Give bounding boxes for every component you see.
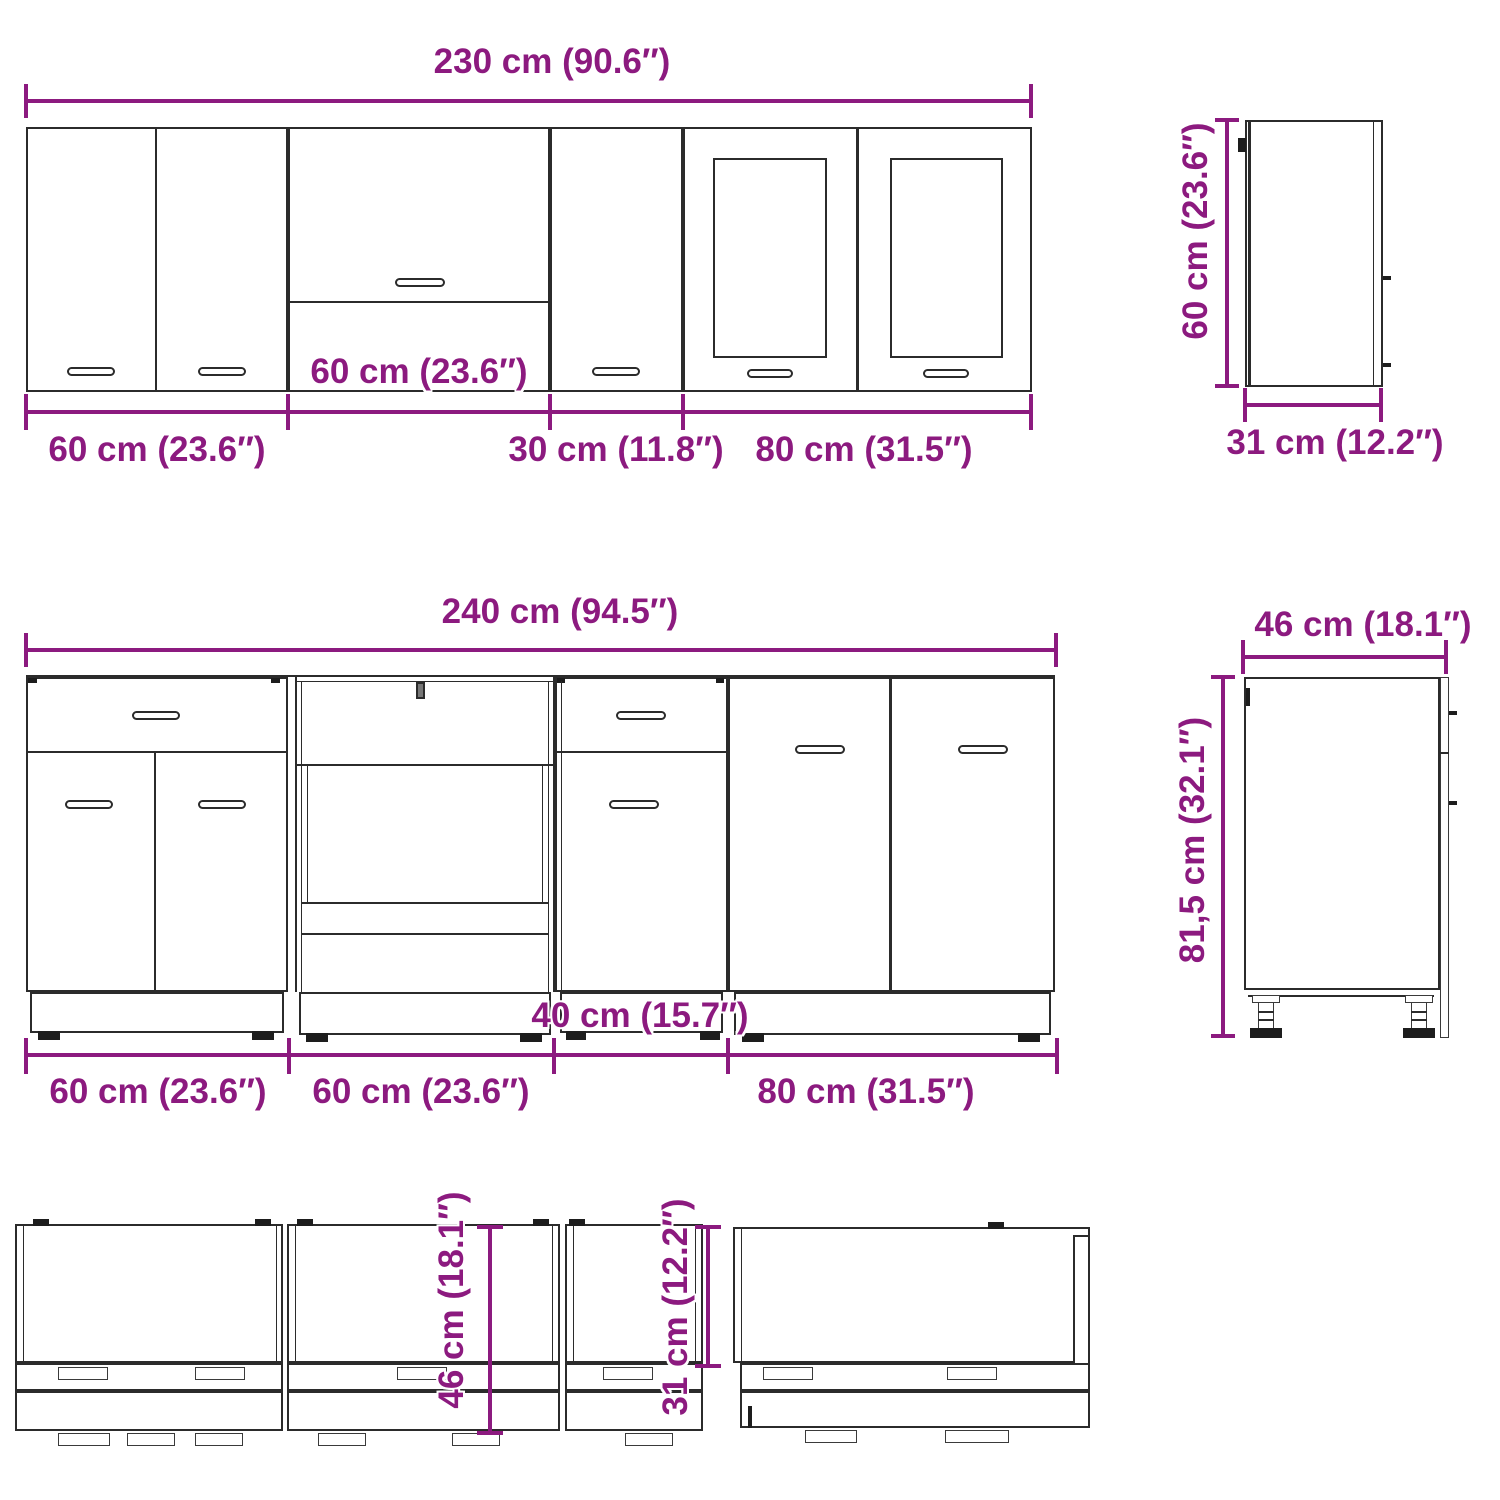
dim-label-plan-depth-wall: 31 cm (12.2″) bbox=[656, 1182, 696, 1432]
wall-cabinet-30-single-door bbox=[550, 127, 683, 392]
dim-label-wall-side-height: 60 cm (23.6″) bbox=[1176, 106, 1216, 356]
panel-edge-line bbox=[23, 1226, 24, 1361]
door-handle bbox=[923, 369, 969, 378]
dimension-tick bbox=[287, 1038, 291, 1074]
hinge-block bbox=[1238, 138, 1246, 152]
cabinet-side-line bbox=[561, 681, 562, 990]
dimension-line bbox=[1225, 120, 1229, 388]
panel-edge-line bbox=[276, 1226, 277, 1361]
leg-stem bbox=[1411, 1002, 1427, 1029]
drawer-handle bbox=[132, 711, 180, 720]
foot-block bbox=[252, 1031, 274, 1040]
dimension-line bbox=[26, 648, 1057, 652]
dimension-tick bbox=[477, 1431, 503, 1435]
flip-panel-bottom-line bbox=[297, 764, 554, 766]
vent-latch-mark bbox=[416, 682, 425, 699]
plan-back-band bbox=[15, 1391, 283, 1431]
foot-block bbox=[306, 1033, 328, 1042]
glass-panel bbox=[713, 158, 827, 358]
base-cabinet-side-view bbox=[1244, 677, 1440, 990]
drawer-front-line bbox=[557, 751, 726, 753]
door-divider-line bbox=[154, 753, 156, 990]
wall-bracket-mark bbox=[1383, 276, 1391, 280]
door-handle bbox=[592, 367, 640, 376]
foot-plate-top-view bbox=[127, 1433, 175, 1446]
dimension-tick bbox=[477, 1225, 503, 1229]
dimension-tick bbox=[1029, 394, 1033, 430]
door-divider-line bbox=[889, 679, 892, 990]
foot-plate-top-view bbox=[58, 1433, 110, 1446]
plan-cabinet-80 bbox=[733, 1227, 1090, 1363]
door-handle bbox=[198, 800, 246, 809]
dimension-tick bbox=[24, 84, 28, 118]
dimension-tick bbox=[24, 1038, 28, 1074]
foot-plate-top-view bbox=[805, 1430, 857, 1443]
handle-top-view bbox=[947, 1367, 997, 1380]
back-panel-line bbox=[1373, 122, 1374, 385]
plan-cabinet-60 bbox=[15, 1224, 283, 1363]
dimension-tick bbox=[24, 633, 28, 667]
dim-label-wall-side-depth: 31 cm (12.2″) bbox=[1190, 423, 1480, 463]
flip-door-bottom-line bbox=[290, 301, 548, 303]
dimension-tick bbox=[1379, 388, 1383, 422]
dim-label-base-seg3: 40 cm (15.7″) bbox=[490, 996, 790, 1036]
dimension-tick bbox=[1444, 640, 1448, 674]
dim-label-base-seg2: 60 cm (23.6″) bbox=[271, 1072, 571, 1112]
leg-foot bbox=[1250, 1028, 1282, 1038]
dimension-line bbox=[706, 1227, 710, 1368]
wall-cabinet-side-view bbox=[1245, 120, 1383, 387]
dimension-tick bbox=[286, 394, 290, 430]
dim-label-wall-seg2: 60 cm (23.6″) bbox=[294, 352, 544, 392]
plinth bbox=[30, 992, 284, 1033]
kitchen-cabinet-dimension-diagram: 230 cm (90.6″) 60 cm (23.6″) 60 cm (23.6… bbox=[0, 0, 1500, 1500]
door-divider-line bbox=[155, 129, 157, 390]
corner-block bbox=[716, 678, 724, 683]
door-edge-line bbox=[1248, 122, 1251, 385]
dimension-tick bbox=[1241, 640, 1245, 674]
drawer-handle bbox=[616, 711, 666, 720]
dimension-line bbox=[26, 99, 1032, 103]
dimension-tick bbox=[24, 394, 28, 430]
door-handle bbox=[65, 800, 113, 809]
plan-cabinet-60b bbox=[287, 1224, 560, 1363]
dimension-line bbox=[488, 1227, 492, 1435]
dimension-tick bbox=[1243, 388, 1247, 422]
door-handle bbox=[958, 745, 1008, 754]
glass-panel bbox=[890, 158, 1003, 358]
leg-stem bbox=[1258, 1002, 1274, 1029]
oven-shelf-line bbox=[301, 933, 549, 935]
dimension-tick bbox=[726, 1038, 730, 1074]
dim-label-wall-seg4: 80 cm (31.5″) bbox=[714, 430, 1014, 470]
panel-edge-line bbox=[573, 1226, 574, 1361]
handle-top-view bbox=[195, 1367, 245, 1380]
base-cabinet-60-drawer-doors bbox=[26, 677, 288, 992]
cabinet-side-line bbox=[548, 681, 549, 992]
panel-edge-line bbox=[552, 1226, 553, 1361]
corner-block bbox=[271, 678, 280, 683]
panel-edge-line bbox=[295, 1226, 296, 1361]
dim-label-wall-seg1: 60 cm (23.6″) bbox=[7, 430, 307, 470]
bracket-mark bbox=[748, 1406, 752, 1428]
handle-top-view bbox=[763, 1367, 813, 1380]
leg-thread-line bbox=[1411, 1019, 1427, 1021]
dim-label-base-seg4: 80 cm (31.5″) bbox=[716, 1072, 1016, 1112]
hinge-block bbox=[33, 1219, 49, 1226]
flip-door-handle bbox=[395, 278, 445, 287]
dim-label-base-side-height: 81,5 cm (32.1″) bbox=[1173, 710, 1213, 970]
cabinet-side-line bbox=[301, 681, 302, 992]
door-handle bbox=[609, 800, 659, 809]
drawer-runner-mark bbox=[1449, 711, 1457, 715]
foot-plate-top-view bbox=[195, 1433, 243, 1446]
dimension-tick bbox=[681, 394, 685, 430]
door-handle bbox=[198, 367, 246, 376]
panel-edge-line bbox=[741, 1229, 742, 1361]
wall-cabinet-60-double-door bbox=[26, 127, 288, 392]
dimension-tick bbox=[1211, 675, 1235, 679]
dimension-tick bbox=[1029, 84, 1033, 118]
dimension-line bbox=[1221, 677, 1225, 1038]
dim-label-base-seg1: 60 cm (23.6″) bbox=[8, 1072, 308, 1112]
drawer-runner-mark bbox=[1449, 801, 1457, 805]
foot-block bbox=[38, 1031, 60, 1040]
hinge-block bbox=[297, 1219, 313, 1226]
foot-plate-top-view bbox=[625, 1433, 673, 1446]
leg-thread-line bbox=[1258, 1019, 1274, 1021]
door-handle bbox=[747, 369, 793, 378]
side-panel-strip bbox=[1440, 677, 1449, 1038]
dimension-tick bbox=[1215, 384, 1239, 388]
base-cabinet-40-drawer-door bbox=[555, 677, 728, 992]
dimension-line bbox=[1243, 655, 1448, 659]
oven-cavity-bottom-line bbox=[301, 902, 549, 904]
dim-label-base-side-width: 46 cm (18.1″) bbox=[1213, 605, 1500, 645]
dimension-tick bbox=[695, 1225, 721, 1229]
corner-block bbox=[28, 678, 37, 683]
dimension-tick bbox=[1215, 118, 1239, 122]
dimension-line bbox=[26, 410, 1032, 414]
leg-thread-line bbox=[1411, 1011, 1427, 1013]
plan-back-band bbox=[740, 1391, 1090, 1428]
wall-bracket-mark bbox=[1383, 363, 1391, 367]
drawer-front-line bbox=[28, 751, 286, 753]
dim-label-wall-total: 230 cm (90.6″) bbox=[352, 42, 752, 82]
dimension-tick bbox=[1211, 1034, 1235, 1038]
plan-back-band bbox=[287, 1391, 560, 1431]
hinge-block bbox=[255, 1219, 271, 1226]
side-panel-joint-line bbox=[1440, 752, 1449, 754]
dimension-line bbox=[1245, 403, 1382, 407]
dimension-tick bbox=[1055, 1038, 1059, 1074]
dim-label-plan-depth-base: 46 cm (18.1″) bbox=[432, 1170, 472, 1430]
hinge-block bbox=[533, 1219, 549, 1226]
handle-top-view bbox=[58, 1367, 108, 1380]
foot-plate-top-view bbox=[318, 1433, 366, 1446]
hinge-block bbox=[569, 1219, 585, 1226]
dimension-tick bbox=[1054, 633, 1058, 667]
dimension-line bbox=[26, 1053, 1059, 1057]
dim-label-base-total: 240 cm (94.5″) bbox=[360, 592, 760, 632]
door-handle bbox=[67, 367, 115, 376]
handle-top-view bbox=[603, 1367, 653, 1380]
door-divider-line bbox=[856, 129, 859, 390]
foot-plate-top-view bbox=[945, 1430, 1009, 1443]
oven-cavity-side-line bbox=[542, 766, 543, 903]
oven-cavity-side-line bbox=[307, 766, 308, 903]
dimension-tick bbox=[548, 394, 552, 430]
dimension-tick bbox=[552, 1038, 556, 1074]
cabinet-side-line bbox=[295, 677, 297, 992]
leg-thread-line bbox=[1258, 1011, 1274, 1013]
door-edge-mark bbox=[1246, 688, 1250, 706]
foot-block bbox=[1018, 1033, 1040, 1042]
door-handle bbox=[795, 745, 845, 754]
hinge-block bbox=[988, 1222, 1004, 1229]
leg-foot bbox=[1403, 1028, 1435, 1038]
dimension-tick bbox=[695, 1364, 721, 1368]
